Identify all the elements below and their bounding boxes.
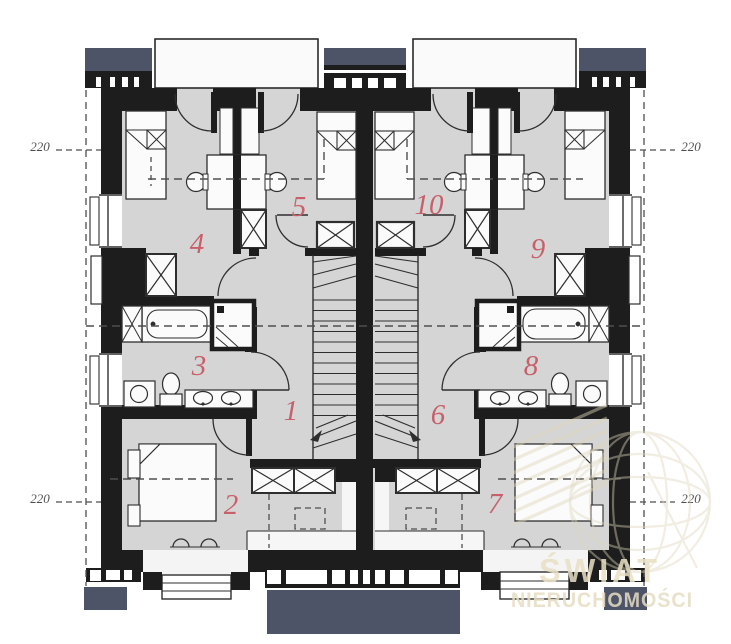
svg-text:2: 2 bbox=[224, 489, 239, 521]
svg-text:220: 220 bbox=[681, 139, 701, 154]
svg-text:9: 9 bbox=[531, 233, 546, 265]
svg-text:220: 220 bbox=[681, 491, 701, 506]
svg-text:220: 220 bbox=[30, 139, 50, 154]
svg-text:10: 10 bbox=[415, 189, 445, 221]
svg-text:1: 1 bbox=[284, 395, 299, 427]
svg-text:6: 6 bbox=[431, 399, 446, 431]
svg-text:220: 220 bbox=[30, 491, 50, 506]
svg-text:4: 4 bbox=[190, 228, 205, 260]
svg-text:NIERUCHOMOŚCI: NIERUCHOMOŚCI bbox=[511, 588, 693, 612]
svg-text:ŚWIAT: ŚWIAT bbox=[539, 552, 661, 589]
svg-text:8: 8 bbox=[524, 350, 539, 382]
svg-text:3: 3 bbox=[191, 350, 207, 382]
svg-text:5: 5 bbox=[292, 191, 307, 223]
svg-text:7: 7 bbox=[488, 488, 504, 520]
